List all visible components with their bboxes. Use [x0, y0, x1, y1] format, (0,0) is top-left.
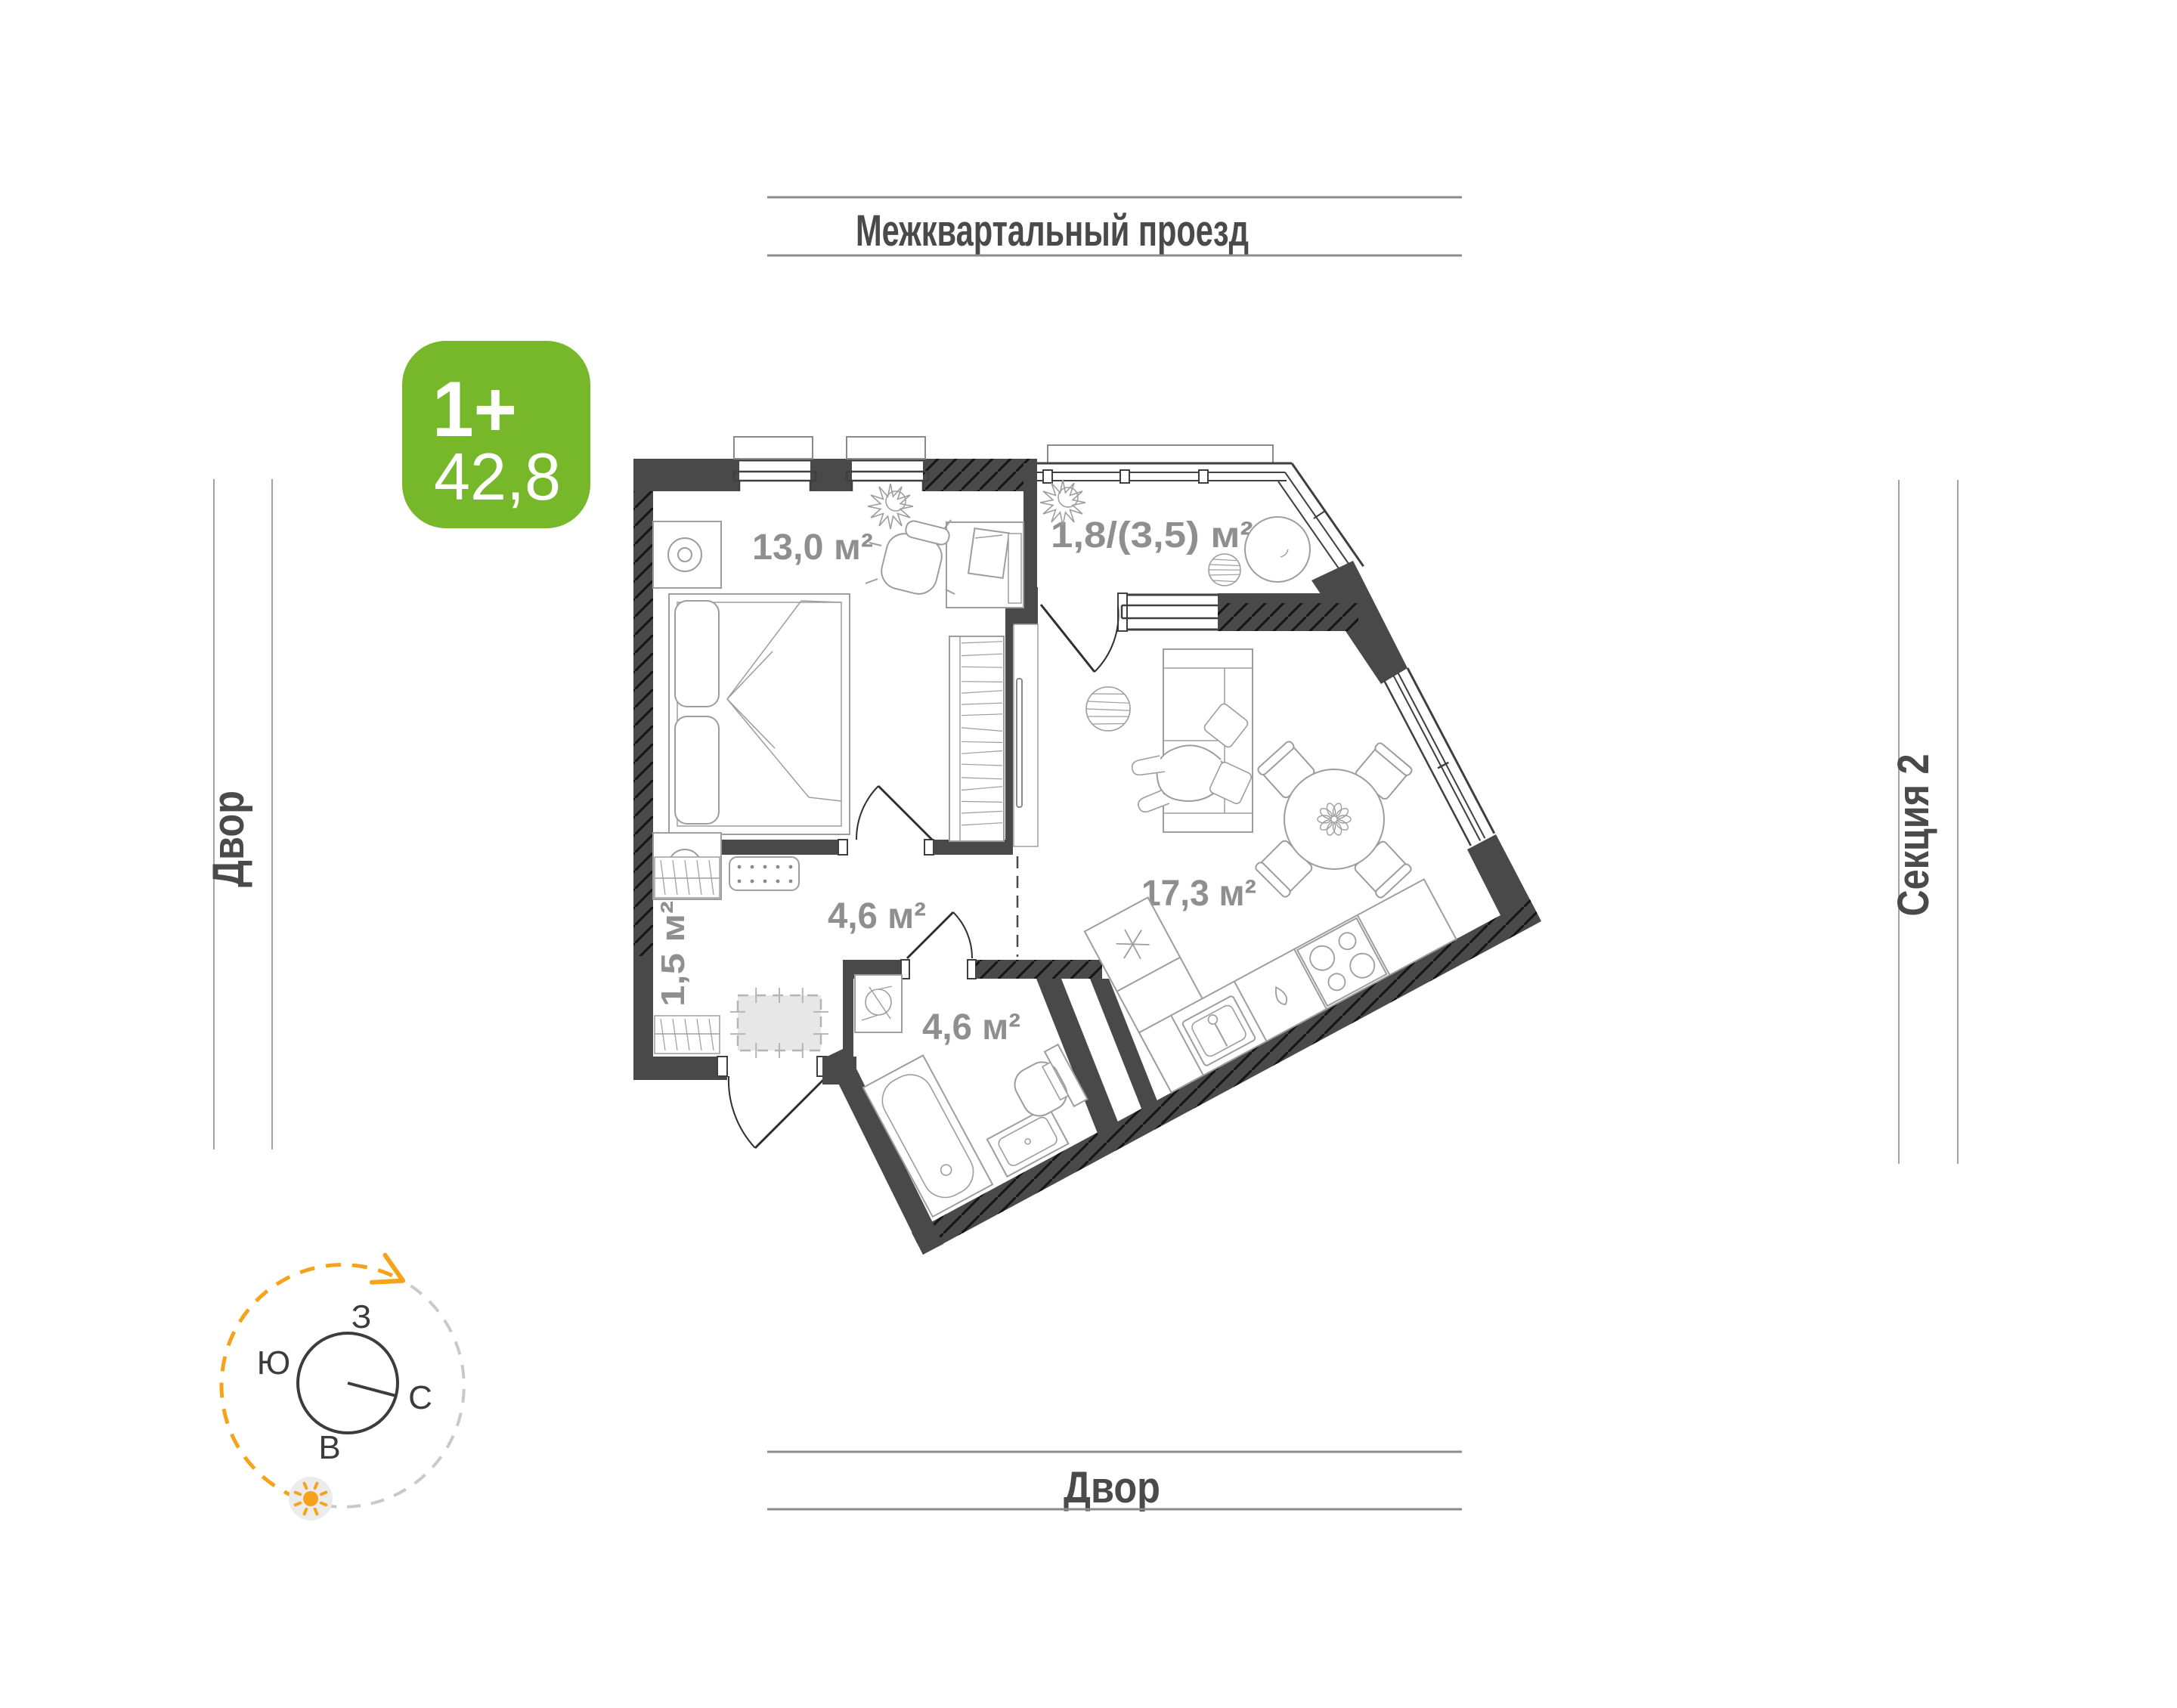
- svg-text:13,0 м²: 13,0 м²: [752, 528, 873, 568]
- svg-text:1,8/(3,5) м²: 1,8/(3,5) м²: [1051, 515, 1253, 555]
- svg-text:В: В: [318, 1429, 340, 1466]
- svg-text:1,5 м²: 1,5 м²: [655, 901, 692, 1007]
- svg-text:42,8: 42,8: [434, 439, 561, 514]
- svg-text:4,6 м²: 4,6 м²: [922, 1007, 1020, 1047]
- svg-text:Двор: Двор: [1064, 1463, 1160, 1512]
- svg-text:17,3 м²: 17,3 м²: [1141, 874, 1256, 914]
- svg-text:Секция 2: Секция 2: [1889, 754, 1938, 917]
- svg-text:Межквартальный проезд: Межквартальный проезд: [856, 206, 1249, 255]
- svg-text:Ю: Ю: [257, 1344, 290, 1382]
- svg-text:С: С: [408, 1379, 432, 1416]
- svg-text:4,6 м²: 4,6 м²: [828, 896, 926, 936]
- svg-text:З: З: [351, 1298, 372, 1335]
- svg-text:Двор: Двор: [204, 791, 253, 887]
